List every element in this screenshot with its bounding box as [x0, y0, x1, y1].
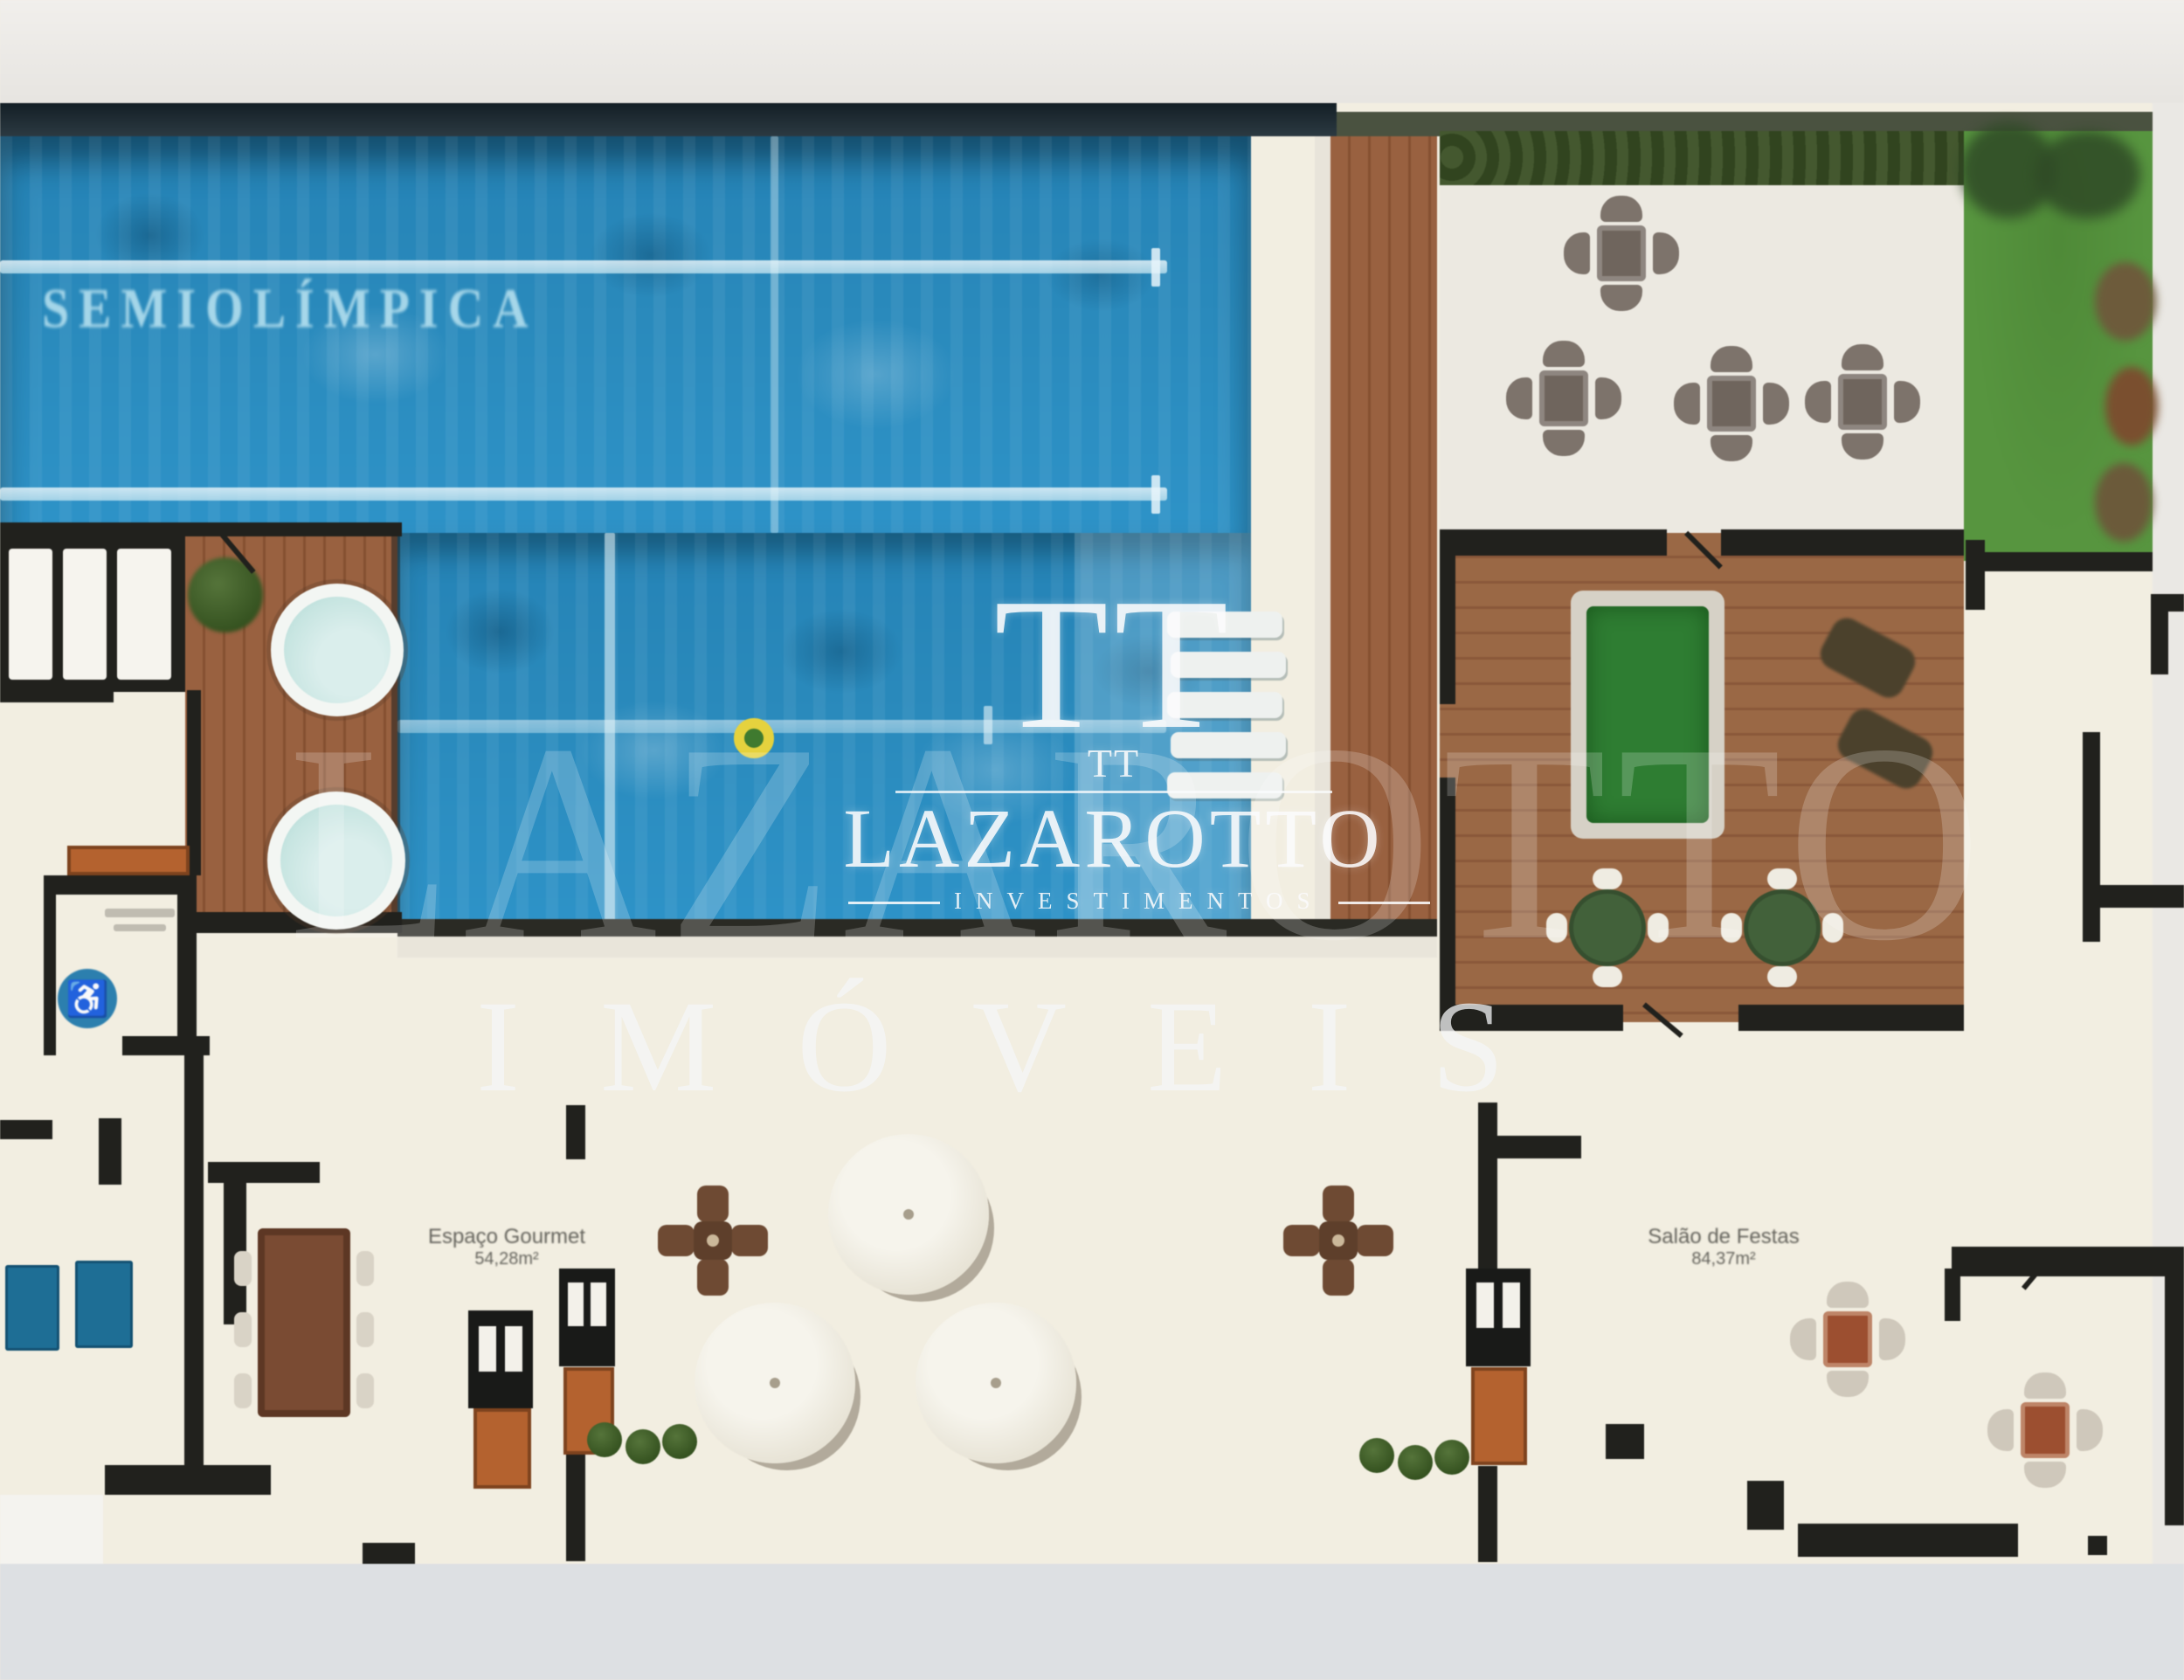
gourmet-chair [234, 1373, 252, 1408]
party-table [1787, 1278, 1909, 1400]
in-pool-lounger [1171, 732, 1286, 758]
wall-segment [1945, 1269, 1960, 1321]
wall-segment [2151, 594, 2184, 612]
lane-tick-2 [1151, 475, 1160, 514]
hedge-row [1440, 131, 1964, 185]
wc-label-smudge [105, 909, 175, 917]
shrub [625, 1429, 660, 1464]
gourmet-room-area: 54,28m² [397, 1249, 616, 1269]
party-wall-top [1952, 1247, 2184, 1276]
gourmet-dining-table [258, 1228, 350, 1417]
games-wall-left [1440, 556, 1455, 704]
door-stub [2088, 1536, 2107, 1555]
pool-coping [1315, 136, 1330, 928]
shrub [587, 1422, 622, 1457]
wall-segment [566, 1105, 585, 1159]
wall-segment [99, 1118, 121, 1185]
cabinet-pane [568, 1282, 584, 1326]
wc-wall-bottom [122, 1036, 210, 1055]
shrub [1398, 1445, 1433, 1480]
games-round-table [1721, 867, 1843, 989]
wall-segment [184, 1055, 204, 1494]
games-wall-bottom [1738, 1005, 1964, 1031]
wc-counter [67, 846, 190, 875]
frame-bottom [0, 1564, 2184, 1680]
games-wall-left [1440, 778, 1455, 1022]
tree [2095, 262, 2156, 341]
in-pool-lounger [1167, 692, 1282, 718]
in-pool-lounger [1167, 772, 1282, 799]
terrace-table [1670, 342, 1793, 465]
bottom-left-void [0, 1495, 103, 1565]
wall-segment [0, 1120, 52, 1139]
cabinet-pane [591, 1282, 606, 1326]
wall-segment [566, 1455, 585, 1561]
shrub [1359, 1438, 1394, 1473]
cabinet-pane [479, 1326, 496, 1372]
changing-stall [117, 549, 171, 680]
gourmet-room-label: Espaço Gourmet 54,28m² [397, 1225, 616, 1269]
patio-cabinet-right [1466, 1269, 1531, 1366]
party-wall-bottom [1798, 1524, 2018, 1557]
door-stub [363, 1543, 415, 1564]
terrace-table [1503, 337, 1625, 460]
shrub [1434, 1440, 1469, 1475]
door-stub [1747, 1481, 1784, 1530]
pool-bottom-wall [397, 919, 1437, 937]
games-wall-top [1721, 529, 1964, 556]
patio-cross-table [1273, 1175, 1404, 1306]
jacuzzi-spa [271, 584, 404, 716]
party-table [1984, 1369, 2106, 1491]
wc-wall-top [44, 875, 197, 895]
wall-segment [0, 687, 114, 702]
tree-canopy [2035, 131, 2140, 218]
pool-float-ring [734, 718, 774, 758]
changing-stall [63, 549, 107, 680]
wood-deck-strip [1330, 136, 1437, 928]
wall-segment [1966, 540, 1985, 610]
tree [2105, 367, 2158, 446]
tree [2095, 463, 2153, 542]
gourmet-chair [356, 1251, 374, 1286]
wall-segment [2083, 732, 2100, 942]
wall-segment [1497, 1136, 1581, 1158]
lane-line-2 [0, 487, 1167, 501]
blue-mat [5, 1265, 59, 1351]
wall-segment [2165, 1276, 2184, 1525]
wc-label-smudge [114, 924, 166, 931]
patio-cross-table [647, 1175, 778, 1306]
cabinet-pane [1503, 1282, 1520, 1328]
wc-wall-left [44, 875, 56, 1055]
wc-wall-right [177, 875, 197, 1038]
pool-seam-v2 [605, 533, 615, 928]
wall-segment [105, 1465, 271, 1495]
party-room-label: Salão de Festas 84,37m² [1628, 1225, 1820, 1269]
changing-stall [9, 549, 52, 680]
party-room-name: Salão de Festas [1628, 1225, 1820, 1249]
games-wall-top [1440, 529, 1667, 556]
patio-counter-right [1471, 1367, 1527, 1465]
wheelchair-glyph: ♿ [66, 978, 109, 1020]
pool-bottom-edge [397, 937, 1437, 958]
gourmet-chair [356, 1373, 374, 1408]
pool-top-wall [0, 103, 1337, 136]
in-pool-lounger [1171, 652, 1286, 678]
lawn-bottom-wall [1966, 552, 2153, 571]
wall-segment [1478, 1466, 1497, 1562]
gourmet-chair [234, 1251, 252, 1286]
floor-plan: SEMIOLÍMPICA ♿ [0, 0, 2184, 1680]
cabinet-pane [505, 1326, 522, 1372]
gourmet-room-name: Espaço Gourmet [397, 1225, 616, 1249]
shrub [662, 1424, 697, 1459]
gourmet-cabinet [468, 1310, 533, 1408]
patio-umbrella [828, 1134, 989, 1295]
lane-tick-1 [1151, 248, 1160, 287]
wall-segment [2151, 612, 2168, 674]
gourmet-chair [234, 1312, 252, 1347]
terrace-table [1801, 341, 1924, 463]
door-stub [1606, 1424, 1644, 1459]
lane-line-3 [397, 720, 1166, 733]
accessibility-icon: ♿ [58, 969, 117, 1028]
patio-umbrella [916, 1303, 1076, 1463]
floor-plan-canvas: SEMIOLÍMPICA ♿ [0, 0, 2184, 1680]
blue-mat [75, 1261, 133, 1348]
lane-tick-3 [984, 706, 992, 744]
patio-umbrella [695, 1303, 855, 1463]
terrace-table [1560, 192, 1683, 315]
in-pool-lounger [1167, 612, 1282, 638]
lane-line-1 [0, 260, 1167, 273]
pool-lane-text: SEMIOLÍMPICA [42, 277, 538, 342]
pool-seam-v1 [771, 136, 778, 533]
games-wall-bottom [1440, 1005, 1623, 1031]
gourmet-chair [356, 1312, 374, 1347]
billiard-felt [1586, 606, 1709, 823]
gourmet-counter [473, 1408, 531, 1489]
patio-cabinet-left [559, 1269, 615, 1366]
party-room-area: 84,37m² [1628, 1249, 1820, 1269]
gourmet-wall-h [208, 1162, 320, 1183]
wall-segment [1478, 1103, 1497, 1270]
frame-top [0, 0, 2184, 103]
cabinet-pane [1476, 1282, 1494, 1328]
games-round-table [1546, 867, 1669, 989]
wall-segment [2100, 885, 2184, 908]
jacuzzi-spa [267, 792, 405, 930]
